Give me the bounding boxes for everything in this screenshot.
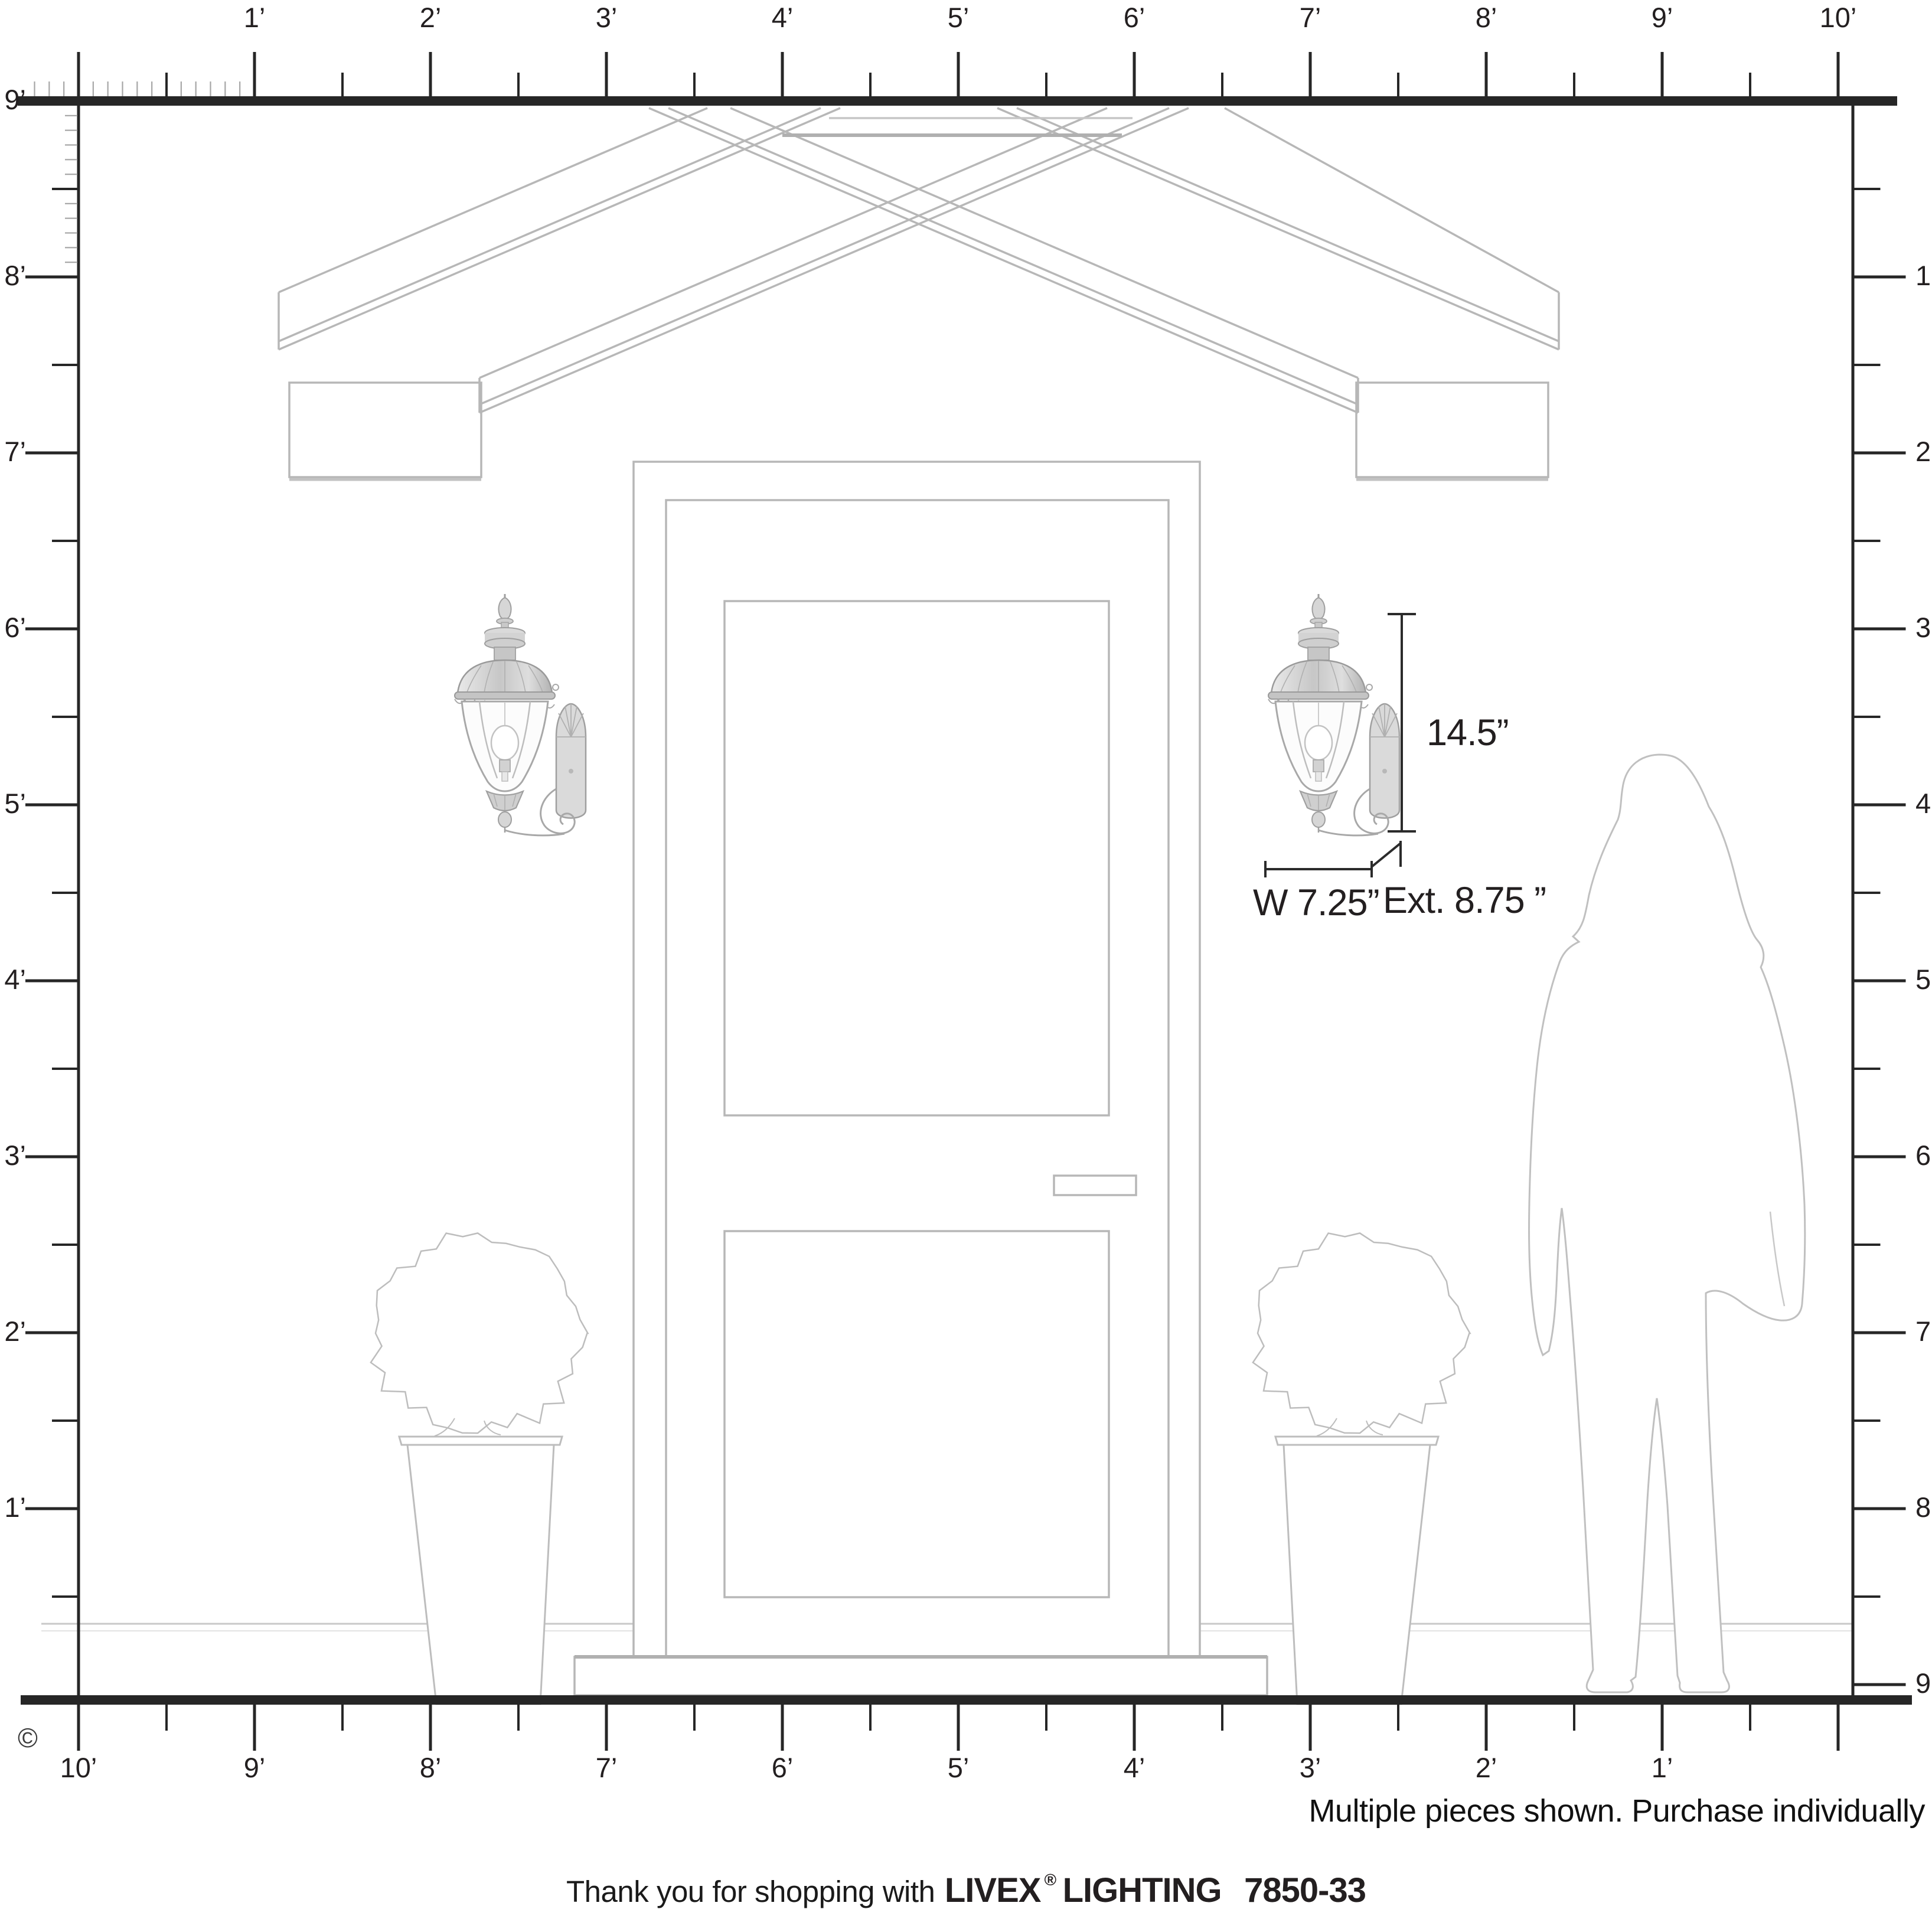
- ruler-label-left-2ft: 2’: [0, 1317, 26, 1346]
- brand-lighting: LIGHTING: [1063, 1871, 1222, 1910]
- ruler-label-bottom-9ft: 9’: [213, 1754, 296, 1782]
- door-handle: [1054, 1176, 1136, 1195]
- ruler-label-left-1ft: 1’: [0, 1493, 26, 1522]
- brand-livex: LIVEX: [945, 1871, 1041, 1910]
- door: [634, 462, 1200, 1657]
- height-dimension-label: 14.5”: [1427, 713, 1509, 752]
- disclaimer-text: Multiple pieces shown. Purchase individu…: [1308, 1793, 1925, 1829]
- ruler-label-right-7ft: 7’: [1915, 1317, 1932, 1346]
- ruler-line-right: [1852, 96, 1855, 1705]
- ruler-label-left-9ft: 9’: [0, 86, 26, 114]
- ruler-label-right-4ft: 4’: [1915, 789, 1932, 818]
- product-model-number: 7850-33: [1244, 1871, 1366, 1910]
- ruler-label-right-9ft: 9’: [1915, 1669, 1932, 1698]
- width-dimension-line: [1265, 861, 1372, 877]
- topiary-bush-right: [1253, 1233, 1470, 1433]
- ruler-label-right-6ft: 6’: [1915, 1141, 1932, 1170]
- ruler-label-bottom-10ft: 10’: [37, 1754, 120, 1782]
- porch-post-left: [289, 383, 481, 479]
- ruler-label-top-9ft: 9’: [1621, 4, 1703, 32]
- planter-left: [371, 1233, 588, 1704]
- ruler-label-top-3ft: 3’: [565, 4, 648, 32]
- ruler-label-bottom-7ft: 7’: [565, 1754, 648, 1782]
- ruler-label-bottom-1ft: 1’: [1621, 1754, 1703, 1782]
- footer: Thank you for shopping with LIVEX® LIGHT…: [0, 1871, 1932, 1910]
- ruler-label-bottom-6ft: 6’: [741, 1754, 824, 1782]
- ruler-label-left-3ft: 3’: [0, 1141, 26, 1170]
- ruler-label-left-5ft: 5’: [0, 789, 26, 818]
- ruler-label-bottom-2ft: 2’: [1445, 1754, 1528, 1782]
- width-dimension-label: W 7.25”: [1253, 883, 1379, 922]
- ruler-label-right-5ft: 5’: [1915, 965, 1932, 994]
- ruler-label-bottom-3ft: 3’: [1269, 1754, 1352, 1782]
- scale-diagram-page: 1’2’3’4’5’6’7’8’9’10’9’8’7’6’5’4’3’2’1’1…: [0, 0, 1932, 1932]
- ruler-label-top-5ft: 5’: [917, 4, 1000, 32]
- ruler-label-top-4ft: 4’: [741, 4, 824, 32]
- ruler-bar-top: [18, 96, 1897, 106]
- ruler-label-top-1ft: 1’: [213, 4, 296, 32]
- ruler-label-top-10ft: 10’: [1797, 4, 1879, 32]
- ruler-label-top-2ft: 2’: [389, 4, 472, 32]
- wall-lantern-left: [455, 594, 586, 836]
- ruler-line-left: [77, 96, 80, 1705]
- extension-dimension-label: Ext. 8.75 ”: [1383, 881, 1546, 920]
- ruler-label-top-6ft: 6’: [1093, 4, 1176, 32]
- ruler-label-bottom-5ft: 5’: [917, 1754, 1000, 1782]
- ruler-label-left-7ft: 7’: [0, 438, 26, 466]
- registered-mark: ®: [1044, 1871, 1056, 1889]
- ruler-label-left-8ft: 8’: [0, 262, 26, 290]
- planter-right: [1253, 1233, 1470, 1704]
- ruler-label-left-4ft: 4’: [0, 965, 26, 994]
- planter-pot-left: [399, 1437, 562, 1704]
- porch-post-right: [1356, 383, 1548, 479]
- ruler-label-bottom-4ft: 4’: [1093, 1754, 1176, 1782]
- topiary-bush-left: [371, 1233, 588, 1433]
- ruler-label-top-7ft: 7’: [1269, 4, 1352, 32]
- ruler-bar-bottom: [21, 1695, 1912, 1705]
- ruler-label-right-8ft: 8’: [1915, 1493, 1932, 1522]
- ruler-label-right-3ft: 3’: [1915, 613, 1932, 642]
- wall-lantern-right: [1268, 594, 1399, 836]
- door-step: [575, 1657, 1267, 1695]
- person-silhouette: [1529, 755, 1805, 1692]
- ruler-label-right-1ft: 1’: [1915, 262, 1932, 290]
- planter-pot-right: [1275, 1437, 1438, 1704]
- ruler-label-bottom-8ft: 8’: [389, 1754, 472, 1782]
- footer-thanks-text: Thank you for shopping with: [566, 1874, 935, 1909]
- ruler-label-left-6ft: 6’: [0, 613, 26, 642]
- scale-diagram-scene: [0, 0, 1932, 1932]
- ruler-label-top-8ft: 8’: [1445, 4, 1528, 32]
- ruler-label-right-2ft: 2’: [1915, 438, 1932, 466]
- door-panel-bottom: [724, 1231, 1109, 1597]
- extension-dimension-leader: [1372, 841, 1401, 867]
- porch-gable-roof: [279, 108, 1559, 479]
- copyright-symbol: ©: [18, 1722, 38, 1754]
- door-panel-top: [724, 601, 1109, 1115]
